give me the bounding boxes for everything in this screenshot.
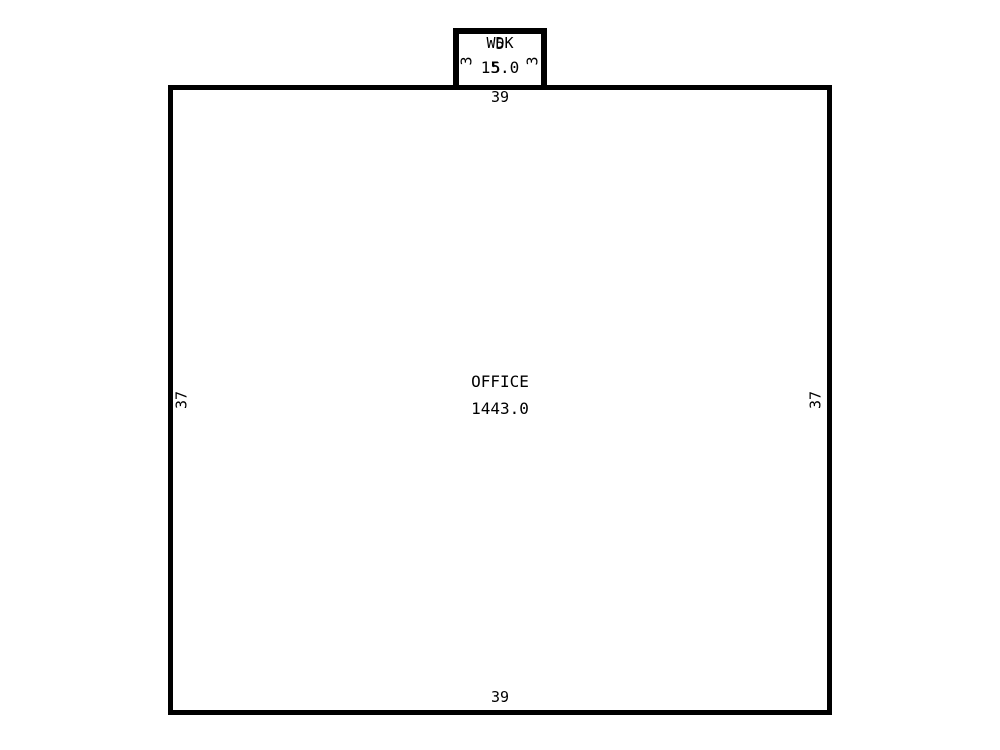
annex-dim-right: 3 xyxy=(526,56,541,65)
office-room-area: 1443.0 xyxy=(471,401,529,417)
office-dim-left: 37 xyxy=(175,391,190,409)
office-dim-right: 37 xyxy=(809,391,824,409)
office-room-name: OFFICE xyxy=(471,374,529,390)
annex-dim-bottom: 5 xyxy=(491,61,500,76)
annex-dim-left: 3 xyxy=(460,56,475,65)
office-dim-top: 39 xyxy=(491,90,509,105)
floorplan-canvas: OFFICE 1443.0 39 39 37 37 WDK 5 15.0 5 3… xyxy=(0,0,1000,750)
office-dim-bottom: 39 xyxy=(491,690,509,705)
annex-dim-top: 5 xyxy=(495,37,504,52)
